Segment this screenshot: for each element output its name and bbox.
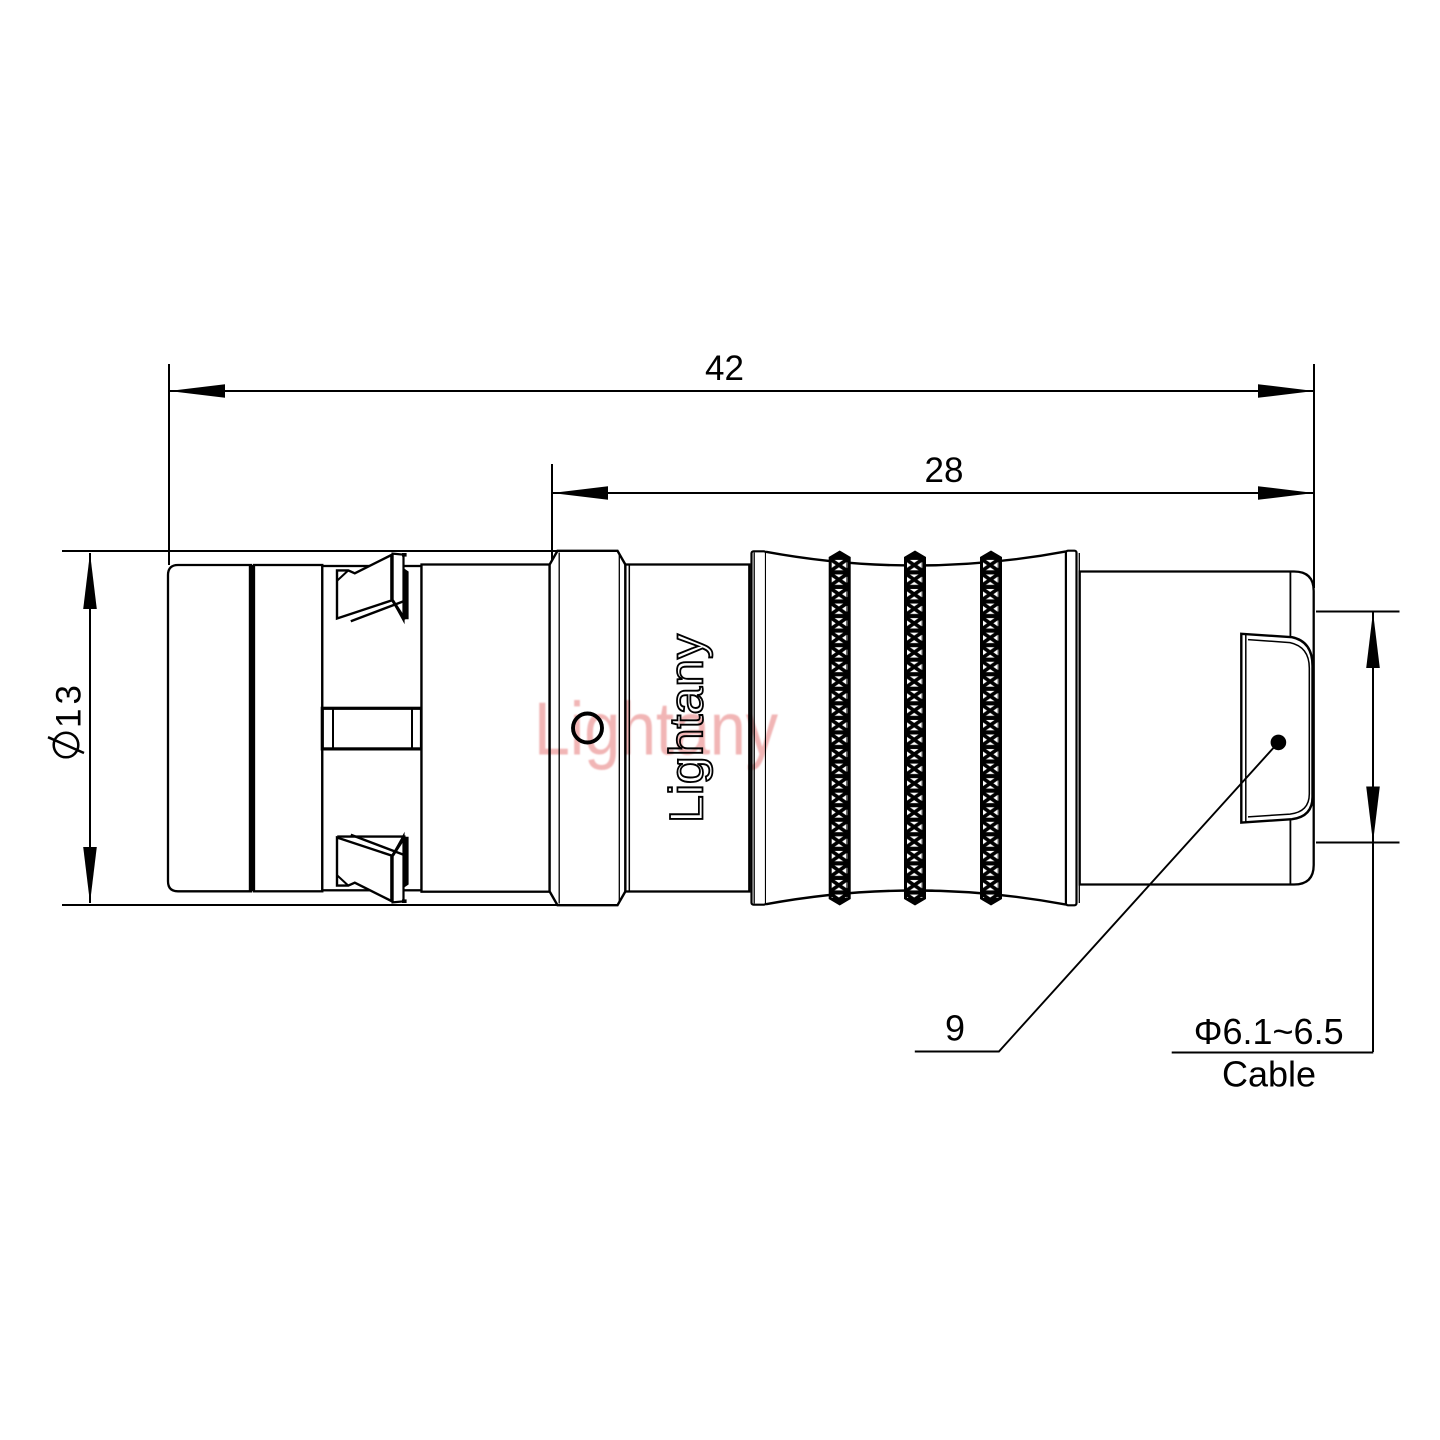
svg-text:42: 42: [705, 349, 744, 388]
svg-text:Φ6.1~6.5: Φ6.1~6.5: [1194, 1011, 1344, 1052]
svg-text:13: 13: [50, 681, 89, 728]
svg-text:Cable: Cable: [1222, 1054, 1316, 1095]
svg-text:9: 9: [945, 1008, 965, 1049]
svg-text:Lightany: Lightany: [534, 686, 778, 770]
svg-text:28: 28: [925, 451, 964, 490]
